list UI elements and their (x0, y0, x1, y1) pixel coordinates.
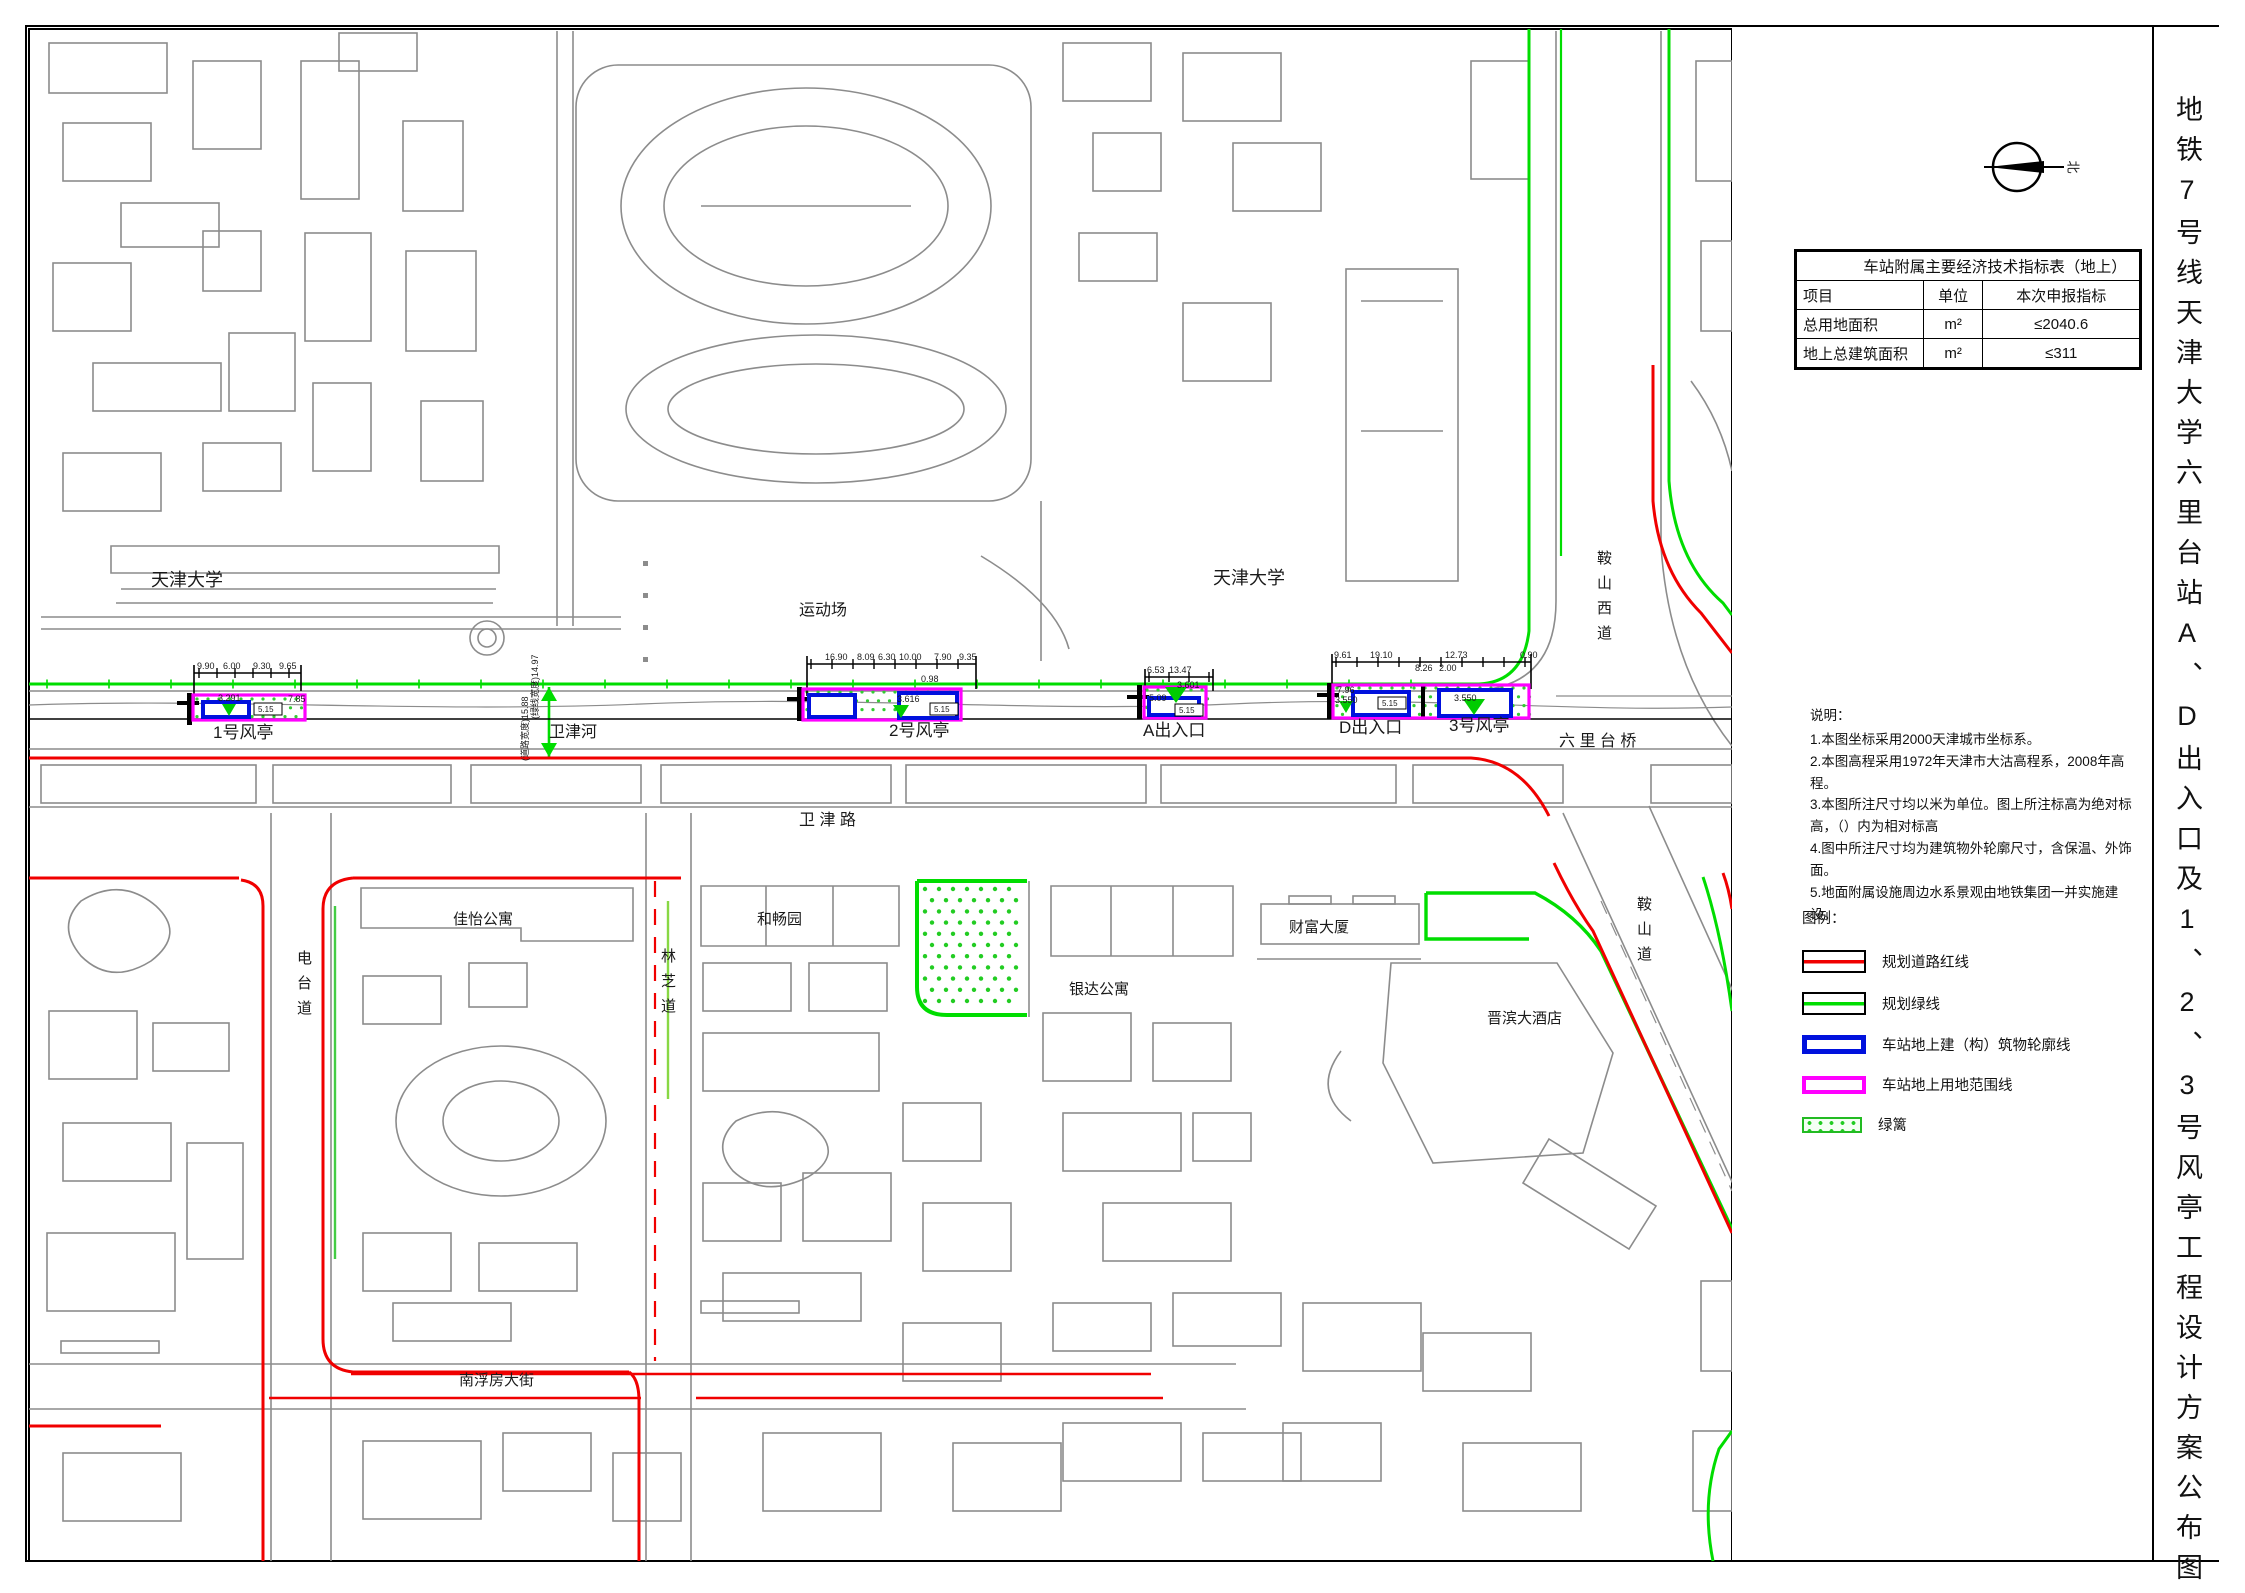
spec-table-header-value: 本次申报指标 (1983, 281, 2141, 310)
dimension-label: 7.90 (934, 652, 952, 662)
station-structure-label-entrance-d: D出入口 (1339, 718, 1402, 737)
spec-row-item: 地上总建筑面积 (1796, 339, 1924, 369)
road-label-nanfufang-street: 南浮房大街 (459, 1372, 534, 1389)
base-map-buildings (29, 31, 1733, 1561)
place-label-tianjin-university-west: 天津大学 (151, 570, 223, 590)
planning-green-lines (29, 29, 1732, 1561)
road-label-liulitai-bridge: 六 里 台 桥 (1559, 732, 1636, 750)
dimension-label: 19.10 (1370, 650, 1393, 660)
spec-row-unit: m² (1923, 310, 1983, 339)
dimension-label: 7.85 (288, 694, 306, 704)
legend-heading: 图例： (1802, 907, 2147, 928)
note-line: 4.图中所注尺寸均为建筑物外轮廓尺寸，含保温、外饰面。 (1810, 838, 2144, 882)
place-label-jiayi-apartment: 佳怡公寓 (453, 910, 513, 928)
dimension-label: 9.90 (197, 661, 215, 671)
spec-row-value: ≤311 (1983, 339, 2141, 369)
road-label-weijin-road: 卫 津 路 (799, 811, 856, 829)
dimension-label: 8.26 (1415, 663, 1433, 673)
site-plan-map: 天津大学天津大学运动场卫津河卫 津 路六 里 台 桥1号风亭2号风亭A出入口D出… (28, 28, 1733, 1562)
dimension-label: 16.90 (825, 652, 848, 662)
spec-row-value: ≤2040.6 (1983, 310, 2141, 339)
map-labels: 天津大学天津大学运动场卫津河卫 津 路六 里 台 桥1号风亭2号风亭A出入口D出… (151, 550, 1652, 1389)
legend-label: 绿篱 (1878, 1114, 1907, 1135)
spec-table-header-item: 项目 (1796, 281, 1924, 310)
spec-row-unit: m² (1923, 339, 1983, 369)
note-line: 1.本图坐标采用2000天津城市坐标系。 (1810, 729, 2144, 751)
road-label-anshan-west-road: 鞍山西道 (1597, 550, 1612, 642)
legend-swatch-magenta-outline-icon (1802, 1076, 1866, 1094)
legend-label: 车站地上建（构）筑物轮廓线 (1882, 1034, 2071, 1055)
station-structure-label-vent-3: 3号风亭 (1449, 716, 1509, 735)
legend-item-land-boundary: 车站地上用地范围线 (1802, 1074, 2147, 1095)
green-line-ticks (47, 97, 1529, 689)
legend-label: 规划道路红线 (1882, 951, 1969, 972)
legend-swatch-hedge-icon (1802, 1117, 1862, 1133)
legend-swatch-road-red-line-icon (1802, 950, 1866, 973)
north-arrow: 北 (1972, 122, 2092, 212)
place-label-jinbin-hotel: 晋滨大酒店 (1487, 1010, 1562, 1027)
dimension-label: 3.291 (218, 693, 241, 703)
legend-swatch-blue-outline-icon (1802, 1035, 1866, 1054)
dimension-label: (绿线宽度)14.97 (529, 654, 540, 719)
road-label-anshan-road: 鞍山道 (1637, 896, 1652, 963)
place-label-yinda-apartment: 银达公寓 (1069, 980, 1129, 998)
dimension-label: 9.35 (959, 652, 977, 662)
spec-table-header-row: 项目 单位 本次申报指标 (1796, 281, 2141, 310)
dimension-label: 10.00 (899, 652, 922, 662)
dimension-label: 9.30 (253, 661, 271, 671)
dimension-label: 5.09 (1149, 693, 1167, 703)
road-label-diantai-road: 电台道 (297, 950, 312, 1017)
note-line: 3.本图所注尺寸均以米为单位。图上所注标高为绝对标高，（）内为相对标高 (1810, 794, 2144, 838)
road-label-linzhi-road: 林芝道 (661, 948, 676, 1015)
legend-item-road-red-line: 规划道路红线 (1802, 950, 2147, 973)
dimension-label: 5.15 (1179, 706, 1195, 715)
notes-heading: 说明： (1810, 705, 2144, 727)
spec-row-item: 总用地面积 (1796, 310, 1924, 339)
place-label-hechang-garden: 和畅园 (757, 911, 802, 928)
spec-table-header-unit: 单位 (1923, 281, 1983, 310)
info-panel: 北 车站附属主要经济技术指标表（地上） 项目 单位 本次申报指标 总用地面积 m… (1732, 27, 2152, 1560)
dimension-label: 6.53 (1147, 665, 1165, 675)
dimension-label: 2.00 (1439, 663, 1457, 673)
dimension-label: 0.98 (921, 674, 939, 684)
station-structure-label-vent-1: 1号风亭 (213, 723, 273, 742)
map-border (29, 29, 1732, 1561)
dimension-label: 5.15 (1382, 699, 1398, 708)
dimension-label: 0.90 (1520, 650, 1538, 660)
dimension-label: 8.09 (857, 652, 875, 662)
dimension-label: 7.96 (1337, 685, 1355, 695)
dimension-label: 3.601 (1177, 680, 1200, 690)
dimension-label: 12.73 (1445, 650, 1468, 660)
dimension-label: 9.61 (1334, 650, 1352, 660)
hedge-dot-pattern (923, 887, 1018, 1003)
legend-item-building-outline: 车站地上建（构）筑物轮廓线 (1802, 1034, 2147, 1055)
dimension-label: 6.30 (878, 652, 896, 662)
title-strip: 地铁7号线天津大学六里台站A、D出入口及1、2、3号风亭工程设计方案公布图 (2152, 27, 2221, 1560)
legend-label: 车站地上用地范围线 (1882, 1074, 2013, 1095)
dimension-label: 9.65 (279, 661, 297, 671)
station-structure-label-vent-2: 2号风亭 (889, 721, 949, 740)
dimension-label: 13.47 (1169, 665, 1192, 675)
dimension-label: 5.15 (934, 705, 950, 714)
legend: 图例： 规划道路红线 规划绿线 车站地上建（构）筑物轮廓线 车站地上用地范围线 … (1802, 907, 2147, 1154)
drawing-title: 地铁7号线天津大学六里台站A、D出入口及1、2、3号风亭工程设计方案公布图 (2168, 95, 2207, 1593)
dimension-label: 5.15 (258, 705, 274, 714)
spec-table-row: 总用地面积 m² ≤2040.6 (1796, 310, 2141, 339)
place-label-weijin-river: 卫津河 (549, 723, 597, 741)
legend-item-green-line: 规划绿线 (1802, 992, 2147, 1015)
note-line: 2.本图高程采用1972年天津市大沽高程系，2008年高程。 (1810, 751, 2144, 795)
spec-table: 车站附属主要经济技术指标表（地上） 项目 单位 本次申报指标 总用地面积 m² … (1794, 249, 2142, 370)
north-arrow-pointer (1988, 161, 2044, 173)
dimension-label: 3.550 (1454, 693, 1477, 703)
north-arrow-label: 北 (2066, 160, 2081, 173)
legend-item-hedge: 绿篱 (1802, 1114, 2147, 1135)
legend-label: 规划绿线 (1882, 993, 1940, 1014)
place-label-fortune-tower: 财富大厦 (1289, 918, 1349, 936)
spec-table-row: 地上总建筑面积 m² ≤311 (1796, 339, 2141, 369)
dimension-label: 3.550 (1335, 695, 1358, 705)
place-label-tianjin-university-east: 天津大学 (1213, 568, 1285, 588)
dimension-label: 6.00 (223, 661, 241, 671)
legend-swatch-green-line-icon (1802, 992, 1866, 1015)
dimension-label: 3.616 (897, 694, 920, 704)
drawing-sheet: 天津大学天津大学运动场卫津河卫 津 路六 里 台 桥1号风亭2号风亭A出入口D出… (25, 25, 2219, 1562)
notes: 说明： 1.本图坐标采用2000天津城市坐标系。 2.本图高程采用1972年天津… (1810, 705, 2144, 926)
place-label-sports-field: 运动场 (799, 601, 847, 619)
spec-table-title: 车站附属主要经济技术指标表（地上） (1796, 251, 2141, 281)
dimension-label: (道路宽度)15.88 (519, 696, 530, 761)
station-structure-label-entrance-a: A出入口 (1143, 721, 1205, 740)
